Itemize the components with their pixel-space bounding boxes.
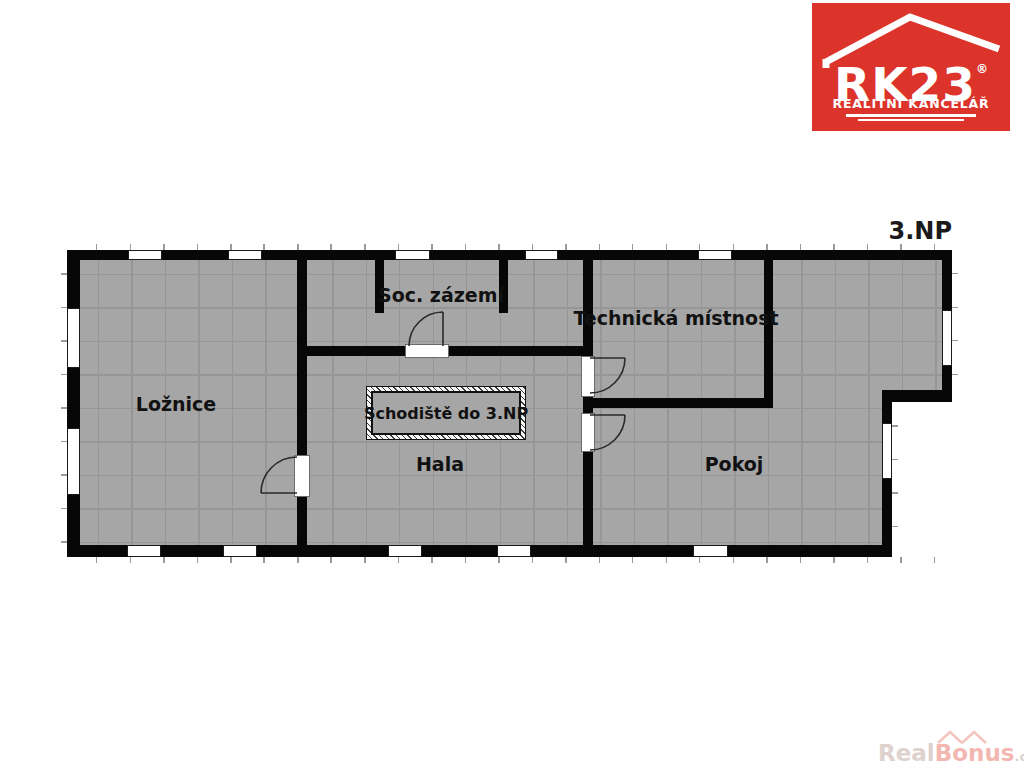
- wall-step-notch: [882, 390, 952, 402]
- watermark: RealBonus.cz: [878, 729, 1020, 767]
- room-label-technicka-mistnost: Technická místnost: [566, 307, 786, 329]
- window-marker: [882, 423, 892, 479]
- ruler-ticks-bottom: [67, 557, 952, 563]
- watermark-cz: .cz: [1015, 749, 1024, 764]
- wall-outer-bottom: [67, 545, 892, 557]
- rk23-logo: RK23® REALITNÍ KANCELÁŘ: [812, 3, 1010, 131]
- wall-tech-right: [764, 255, 773, 403]
- ruler-ticks-right-upper: [952, 250, 958, 402]
- staircase-inner: Schodiště do 3.NP: [371, 391, 521, 435]
- door-opening-loznice: [294, 455, 310, 497]
- window-marker: [395, 250, 430, 260]
- room-label-hala: Hala: [380, 453, 500, 475]
- window-marker: [223, 545, 257, 557]
- staircase-label: Schodiště do 3.NP: [364, 404, 528, 423]
- floor-area-right-extension: [882, 260, 942, 390]
- door-opening-soc-zazemi: [405, 344, 449, 358]
- wall-outer-left: [67, 250, 80, 557]
- wall-outer-top: [67, 250, 952, 260]
- watermark-real: Real: [878, 740, 935, 766]
- window-marker: [693, 545, 728, 557]
- window-marker: [128, 250, 162, 260]
- window-marker: [67, 308, 80, 368]
- window-marker: [942, 310, 952, 366]
- floor-level-label: 3.NP: [832, 217, 952, 245]
- logo-tagline: REALITNÍ KANCELÁŘ: [812, 96, 1010, 111]
- registered-mark: ®: [976, 62, 988, 76]
- window-marker: [228, 250, 262, 260]
- room-label-pokoj: Pokoj: [674, 453, 794, 475]
- door-opening-pokoj: [581, 413, 595, 452]
- window-marker: [525, 250, 558, 260]
- logo-underline-2: [858, 119, 964, 121]
- watermark-text: RealBonus.cz: [878, 740, 1020, 766]
- window-marker: [388, 545, 422, 557]
- watermark-bonus: Bonus: [935, 740, 1015, 766]
- staircase-box: Schodiště do 3.NP: [366, 386, 526, 440]
- window-marker: [497, 545, 531, 557]
- room-label-loznice: Ložnice: [106, 393, 246, 415]
- window-marker: [127, 545, 161, 557]
- wall-tech-pokoj: [588, 398, 773, 408]
- wall-loznice-hala: [297, 255, 307, 545]
- ruler-ticks-right-lower: [892, 402, 898, 557]
- logo-underline-1: [846, 114, 976, 117]
- window-marker: [698, 250, 732, 260]
- window-marker: [67, 428, 80, 495]
- door-opening-technicka: [581, 356, 595, 397]
- room-label-soc-zazemi: Soc. zázemí: [361, 284, 521, 306]
